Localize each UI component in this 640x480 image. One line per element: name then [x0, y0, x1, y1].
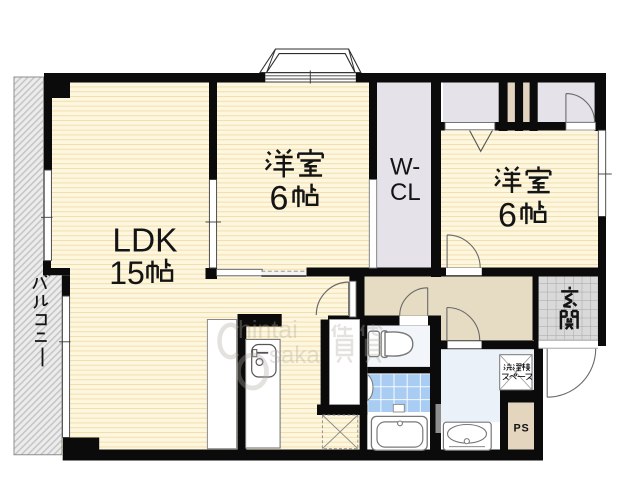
svg-text:CL: CL	[390, 179, 421, 206]
svg-text:saka: saka	[269, 342, 320, 369]
svg-text:LDK: LDK	[112, 222, 177, 259]
svg-text:15: 15	[109, 255, 145, 291]
svg-text:6: 6	[498, 196, 517, 234]
svg-text:hintai: hintai	[238, 316, 298, 344]
svg-text:W-: W-	[390, 153, 420, 180]
svg-text:6: 6	[270, 179, 289, 217]
svg-text:PS: PS	[513, 423, 529, 435]
